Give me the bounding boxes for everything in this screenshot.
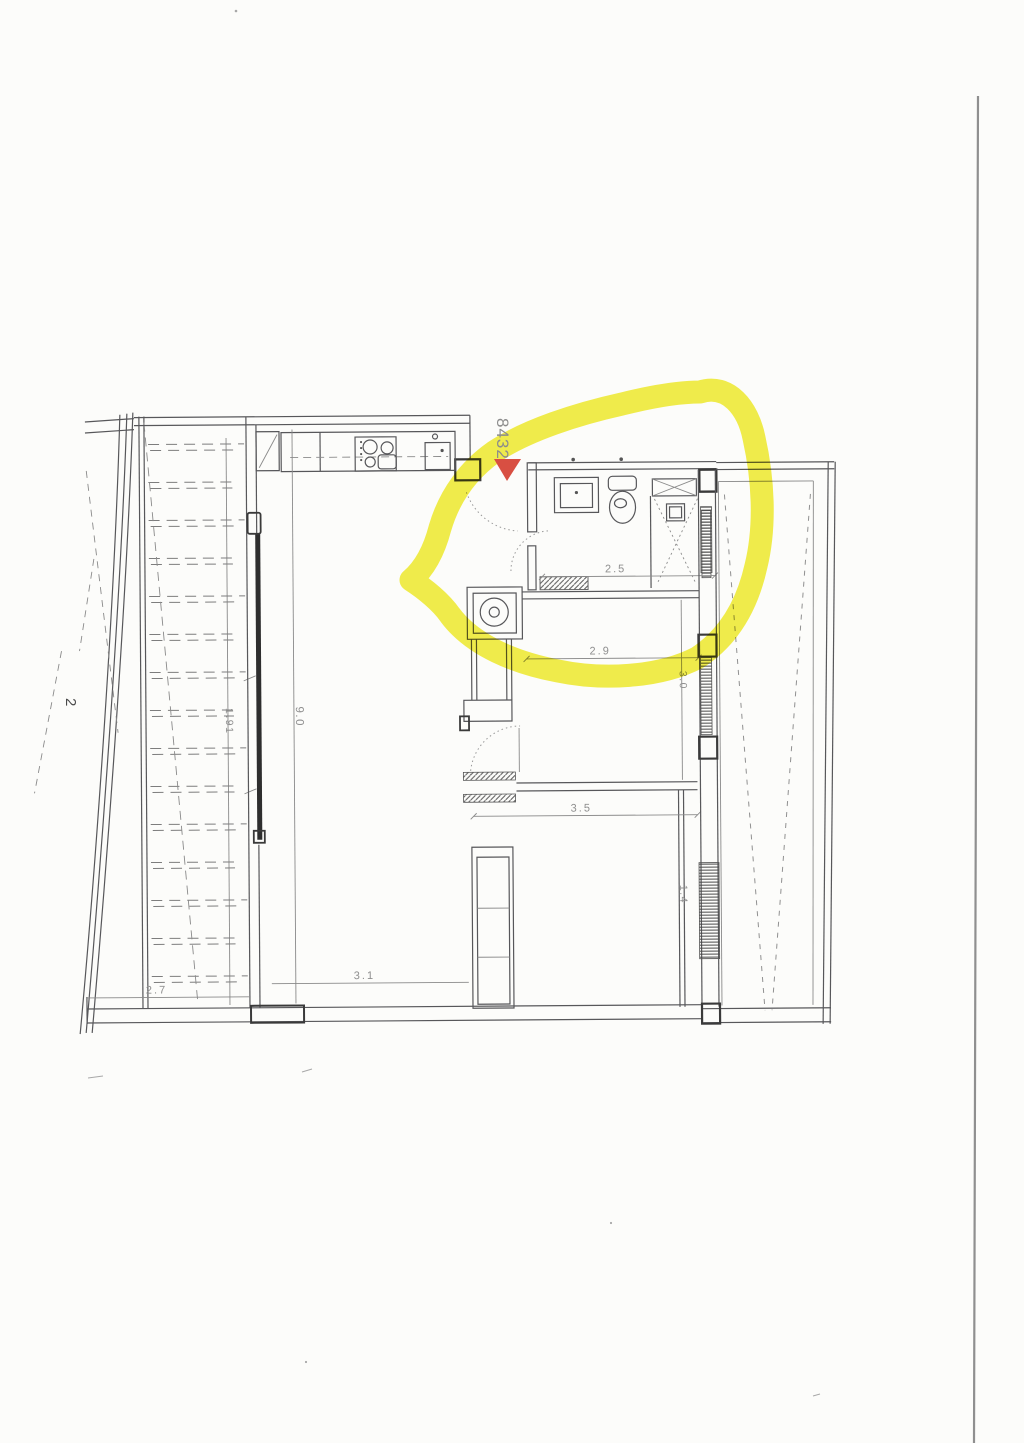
marker-arrow-icon [494, 459, 521, 481]
dim-line-bathroom [542, 576, 715, 577]
window-band [701, 507, 712, 573]
duct-column [699, 470, 716, 492]
door-sill [540, 576, 588, 589]
dim-middle-room-width: 2.9 [589, 645, 610, 657]
middle-room: 2.9 3.0 [523, 600, 702, 781]
door-handle [248, 513, 261, 534]
bedroom: 3.5 1.4 [463, 771, 702, 1009]
site-dashed-lines [32, 471, 118, 794]
page-number: 2 [62, 698, 79, 706]
dim-living-length: 9.0 [293, 706, 305, 727]
dim-bathroom-width: 2.5 [605, 563, 626, 575]
dim-balcony-depth: 1.91 [223, 708, 235, 735]
scan-edge-line [974, 96, 978, 1443]
shelf-icon [652, 479, 696, 496]
sliding-door-track [258, 534, 260, 840]
floor-plan-drawing: 1.91 [0, 0, 1024, 1443]
floor-plan: 1.91 [32, 408, 839, 1035]
balcony: 1.91 [139, 416, 258, 1009]
window-band [699, 863, 720, 959]
entry-door-swing [466, 492, 517, 531]
kitchen-sink-icon [425, 434, 450, 470]
dim-bedroom-width: 3.5 [571, 802, 592, 814]
hallway [459, 587, 523, 775]
bathroom-door-swing [511, 531, 551, 571]
balcony-dim-ticks [244, 676, 257, 794]
kitchen-counter [256, 430, 455, 471]
scanned-page: 1.91 [0, 0, 1024, 1443]
toilet-icon [608, 476, 636, 523]
washbasin-icon [554, 457, 623, 512]
marker-label: 8432 [493, 418, 512, 460]
site-contour-lines [76, 413, 138, 1034]
bathroom: 2.5 [510, 457, 718, 599]
wardrobe-icon [472, 847, 514, 1008]
dim-balcony-width: 2.7 [146, 984, 167, 996]
cooktop-icon [355, 437, 396, 471]
dim-bedroom-window: 1.4 [677, 885, 689, 904]
window-band [701, 658, 713, 735]
hall-door-swing [470, 726, 520, 775]
dim-living-width: 3.1 [354, 970, 375, 982]
terrace-dashed-lines [724, 494, 814, 1011]
